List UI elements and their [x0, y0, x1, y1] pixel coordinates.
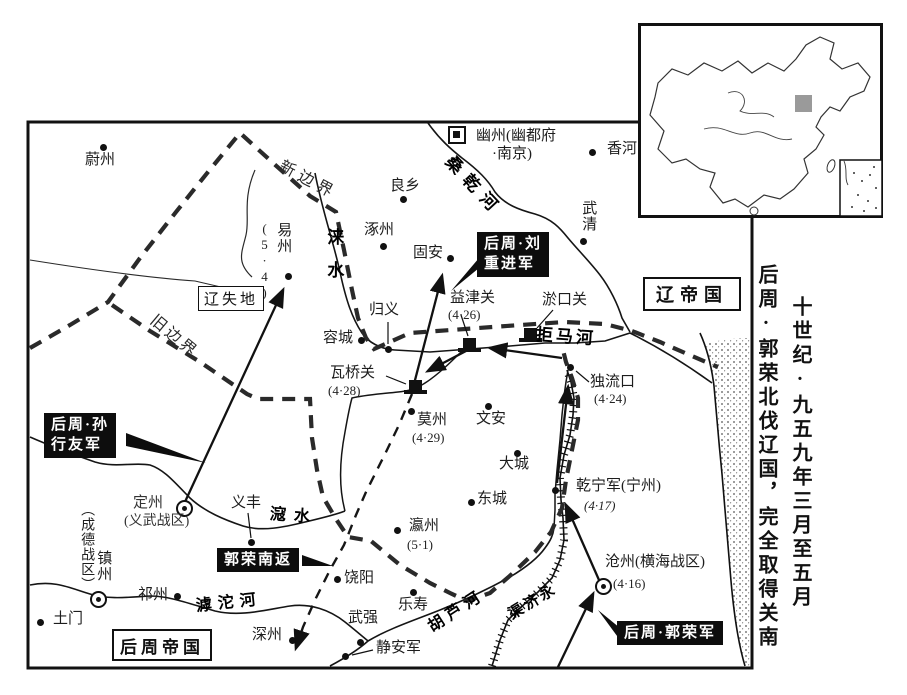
- city-label-yingzhou: 瀛州: [409, 518, 439, 534]
- arrow-to-cangzhou: [558, 594, 593, 667]
- city-dot-guan: [447, 255, 454, 262]
- city-dot-yifeng: [248, 539, 255, 546]
- city-date-cangzhou: (4·16): [613, 577, 646, 591]
- army-label-sun-line2: 行友军: [51, 435, 109, 455]
- city-dot-tumen: [37, 619, 44, 626]
- arrow-duliukou-to-yijin: [490, 348, 562, 358]
- city-dot-mozhou: [408, 408, 415, 415]
- city-date-yingzhou: (5·1): [407, 538, 433, 552]
- city-sub-zhenzhou: （成德战区）: [79, 502, 94, 592]
- army-label-liu-line1: 后周·刘: [484, 234, 542, 254]
- city-label-mozhou: 莫州: [417, 412, 447, 428]
- city-date-mozhou: (4·29): [412, 431, 445, 445]
- city-label-xianghe: 香河: [607, 141, 637, 157]
- arrow-yijin-to-waqiao: [428, 351, 466, 371]
- city-date-qianningjun: (4·17): [584, 499, 615, 513]
- city-label-zhuozhou: 涿州: [364, 222, 394, 238]
- city-label-yukouguan: 淤口关: [542, 292, 587, 308]
- hq-symbol-zhenzhou: [90, 591, 107, 608]
- city-label-dongcheng: 东城: [477, 491, 507, 507]
- city-label-wenan: 文安: [476, 411, 506, 427]
- city-label-yizhou: 易州: [275, 222, 291, 254]
- city-dot-yizhou: [285, 273, 292, 280]
- city-label-raoyang: 饶阳: [344, 570, 374, 586]
- fort-waqiaoguan: [409, 380, 422, 390]
- hq-symbol-cangzhou: [595, 578, 612, 595]
- campaign-area-highlight: [795, 95, 812, 112]
- side-title-date: 十世纪·九五九年三月至五月: [786, 296, 815, 610]
- city-label-qizhou: 祁州: [138, 587, 168, 603]
- city-dot-qizhou: [174, 593, 181, 600]
- leader-duliukou: [576, 371, 589, 382]
- river-tributary: [242, 170, 256, 277]
- city-dot-zhuozhou: [380, 243, 387, 250]
- city-label-guiyi: 归义: [369, 302, 399, 318]
- pointer-guo-return-box: [302, 555, 333, 566]
- army-label-sun-line1: 后周·孙: [51, 415, 109, 435]
- city-label-jinganjun: 静安军: [376, 640, 421, 656]
- region-box-liao-empire: 辽帝国: [643, 277, 741, 311]
- city-label-liangxiang: 良乡: [390, 178, 420, 194]
- arrow-cangzhou-to-qianning: [566, 505, 599, 580]
- city-date-duliukou: (4·24): [594, 392, 627, 406]
- army-box-sun: 后周·孙 行友军: [44, 413, 116, 458]
- city-label-yifeng: 义丰: [231, 495, 261, 511]
- capital-symbol-youzhou: [448, 126, 466, 144]
- city-dot-leshou: [410, 589, 417, 596]
- region-box-zhou-empire: 后周帝国: [112, 629, 212, 661]
- city-date-yijinguan: (4·26): [448, 308, 481, 322]
- city-sub-dingzhou: (义武战区): [124, 514, 189, 529]
- side-title-campaign: 后周·郭荣北伐辽国，完全取得关南: [752, 264, 781, 650]
- pointer-sun-box: [126, 433, 206, 463]
- army-label-guo-main: 后周·郭荣军: [624, 623, 716, 643]
- river-label-kou: 滱水: [269, 506, 318, 527]
- city-dot-dongcheng: [468, 499, 475, 506]
- boundary-new: [30, 133, 718, 367]
- city-dot-wenan: [485, 403, 492, 410]
- army-box-guo-main: 后周·郭荣军: [617, 621, 723, 645]
- city-label-rongcheng: 容城: [323, 330, 353, 346]
- city-dot-rongcheng: [358, 337, 365, 344]
- city-label-dacheng: 大城: [499, 456, 529, 472]
- city-label-qianningjun: 乾宁军(宁州): [576, 478, 661, 494]
- army-box-guo-return: 郭荣南返: [217, 548, 299, 572]
- city-label-zhenzhou: 镇州: [95, 550, 111, 582]
- city-date-waqiaoguan: (4·28): [328, 384, 361, 398]
- river-hulu: [330, 528, 554, 666]
- army-label-liu-line2: 重进军: [484, 254, 542, 274]
- city-label-waqiaoguan: 瓦桥关: [330, 365, 375, 381]
- city-dot-liangxiang: [400, 196, 407, 203]
- city-dot-weizhou: [100, 144, 107, 151]
- city-label-youzhou-line1: 幽州(幽都府: [476, 128, 556, 144]
- city-label-yijinguan: 益津关: [450, 290, 495, 306]
- city-label-wuqiang: 武强: [348, 610, 378, 626]
- city-dot-raoyang: [334, 576, 341, 583]
- army-box-liu: 后周·刘 重进军: [477, 232, 549, 277]
- city-dot-yingzhou: [394, 527, 401, 534]
- leader-yifeng: [248, 513, 251, 538]
- city-dot-wuqing: [580, 238, 587, 245]
- city-dot-guiyi: [385, 346, 392, 353]
- region-label-liao-lost: 辽失地: [204, 288, 258, 309]
- city-label-dingzhou: 定州: [133, 495, 163, 511]
- region-label-zhou-empire: 后周帝国: [120, 633, 204, 658]
- city-label-shenzhou: 深州: [252, 627, 282, 643]
- city-dot-xianghe: [589, 149, 596, 156]
- city-label-weizhou: 蔚州: [85, 152, 115, 168]
- city-label-leshou: 乐寿: [398, 597, 428, 613]
- region-label-liao-empire: 辽帝国: [656, 281, 728, 307]
- map-page: 蔚州 良乡 涿州 固安 香河 武清 幽州(幽都府 ·南京) 易州 (5·4) 归…: [0, 0, 907, 695]
- city-label-guan: 固安: [413, 245, 443, 261]
- army-label-guo-return: 郭荣南返: [224, 550, 292, 570]
- leader-waqiaoguan: [386, 376, 406, 384]
- city-dot-jinganjun: [342, 653, 349, 660]
- sea-stipple-region: [703, 338, 751, 666]
- city-label-tumen: 土门: [53, 611, 83, 627]
- region-box-liao-lost: 辽失地: [198, 286, 264, 311]
- fort-yijinguan: [463, 338, 476, 348]
- river-label-lai: 涞水: [324, 228, 342, 294]
- city-label-youzhou-line2: ·南京): [492, 146, 532, 162]
- city-dot-shenzhou: [289, 637, 296, 644]
- pointer-liu-box: [451, 258, 479, 291]
- city-dot-duliukou: [567, 364, 574, 371]
- city-dot-wuqiang: [357, 639, 364, 646]
- city-label-duliukou: 独流口: [590, 374, 635, 390]
- city-dot-qianningjun: [552, 487, 559, 494]
- inset-china-map: [638, 23, 883, 218]
- city-label-wuqing: 武清: [580, 200, 596, 232]
- city-label-cangzhou: 沧州(横海战区): [605, 554, 705, 570]
